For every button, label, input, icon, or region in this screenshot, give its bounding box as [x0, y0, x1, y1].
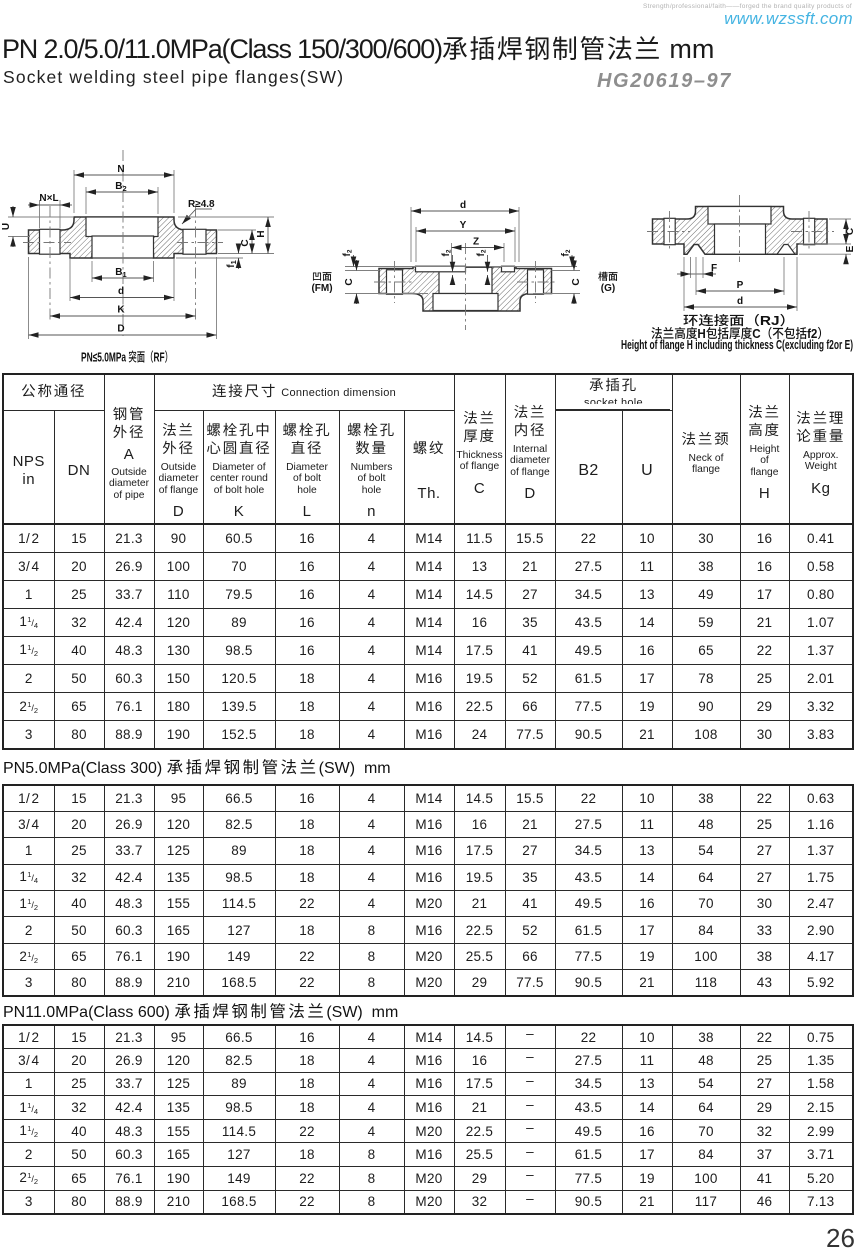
svg-text:U: U [1, 223, 12, 230]
svg-text:H: H [256, 230, 267, 237]
svg-text:槽面: 槽面 [598, 271, 618, 283]
svg-text:D: D [117, 324, 124, 335]
svg-text:f2: f2 [476, 249, 488, 256]
svg-text:N×L: N×L [39, 193, 58, 204]
svg-text:f2: f2 [561, 249, 573, 256]
svg-text:C: C [240, 239, 251, 246]
svg-text:d: d [460, 200, 466, 211]
svg-text:PN≤5.0MPa 突面（RF）: PN≤5.0MPa 突面（RF） [81, 350, 173, 365]
svg-text:C: C [845, 228, 855, 235]
svg-text:f1: f1 [226, 260, 238, 268]
svg-text:凹面: 凹面 [312, 272, 332, 283]
svg-text:Y: Y [460, 220, 467, 231]
svg-text:B1: B1 [115, 267, 126, 279]
svg-text:Z: Z [473, 237, 479, 248]
svg-text:d: d [118, 286, 124, 297]
svg-text:d: d [737, 296, 743, 307]
svg-text:C: C [344, 278, 355, 285]
svg-text:(FM): (FM) [311, 283, 332, 294]
svg-text:K: K [117, 305, 125, 316]
svg-text:(G): (G) [601, 283, 615, 294]
svg-text:F: F [711, 263, 717, 274]
svg-text:E: E [845, 245, 855, 252]
svg-text:f2: f2 [342, 249, 354, 256]
svg-text:B2: B2 [115, 181, 126, 193]
svg-text:Height of flange H including t: Height of flange H including thickness C… [621, 337, 853, 352]
svg-text:C: C [571, 278, 582, 285]
svg-text:P: P [737, 280, 744, 291]
svg-text:f2: f2 [441, 249, 453, 256]
svg-text:N: N [117, 164, 124, 175]
svg-text:R≥4.8: R≥4.8 [188, 199, 215, 210]
